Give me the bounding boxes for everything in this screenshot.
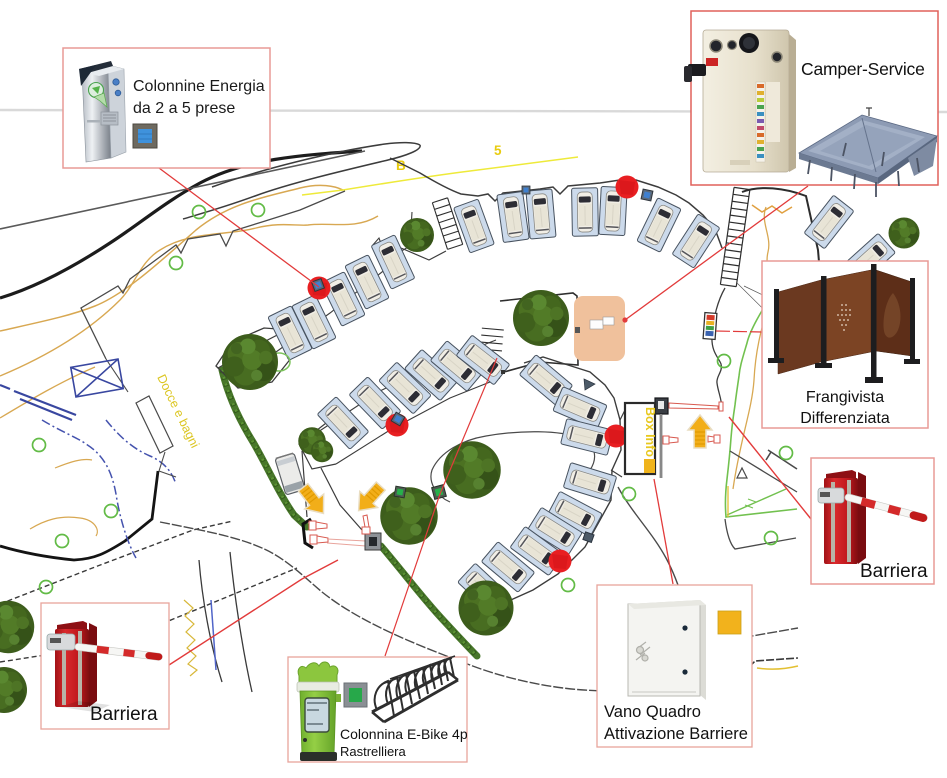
svg-text:Barriera: Barriera (860, 561, 928, 582)
svg-text:Barriera: Barriera (90, 704, 158, 725)
svg-text:5: 5 (494, 143, 502, 158)
svg-text:Differenziata: Differenziata (800, 410, 890, 427)
svg-text:Box Info: Box Info (643, 407, 657, 457)
svg-text:Camper-Service: Camper-Service (801, 59, 925, 79)
svg-text:Frangivista: Frangivista (806, 389, 884, 406)
svg-text:Vano Quadro: Vano Quadro (604, 703, 701, 721)
svg-text:Colonnina E-Bike 4p: Colonnina E-Bike 4p (340, 726, 468, 742)
svg-text:da 2 a 5 prese: da 2 a 5 prese (133, 100, 235, 117)
svg-text:Colonnine Energia: Colonnine Energia (133, 78, 265, 95)
svg-text:Rastrelliera: Rastrelliera (340, 744, 407, 759)
svg-text:Attivazione Barriere: Attivazione Barriere (604, 725, 748, 743)
